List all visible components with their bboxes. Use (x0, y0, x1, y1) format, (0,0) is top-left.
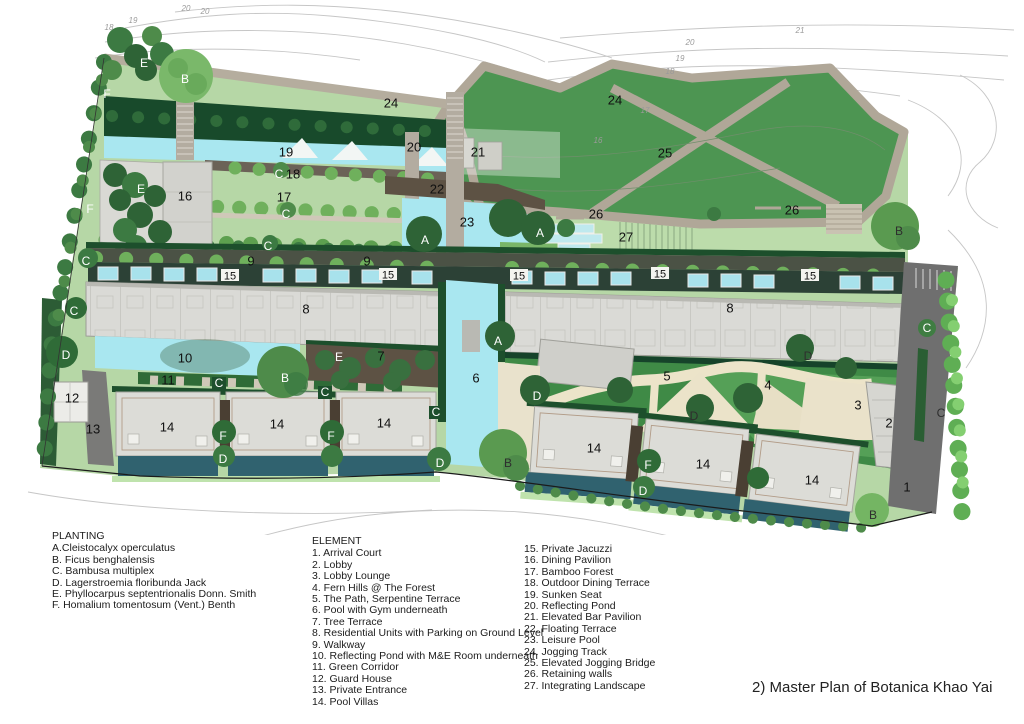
element-heading: ELEMENT (312, 536, 543, 547)
planting-letter-label: D (533, 389, 542, 403)
dining-pavilion-16 (163, 162, 212, 252)
element-number-label: 19 (279, 145, 293, 160)
contour-elevation-label: 19 (129, 16, 138, 25)
planting-letter-label: D (436, 456, 445, 470)
pool-villas-west (112, 392, 440, 482)
planting-letter-label: F (327, 429, 334, 443)
site-plan-drawing: 1234567889910111213141414141414151515151… (0, 0, 1024, 535)
planting-letter-label: C (82, 254, 91, 268)
element-legend-col1: ELEMENT 1. Arrival Court2. Lobby3. Lobby… (312, 536, 543, 708)
west-stair (176, 94, 194, 160)
contour-elevation-label: 19 (676, 54, 685, 63)
legend-item: 18. Outdoor Dining Terrace (524, 578, 655, 589)
element-number-label: 14 (270, 417, 284, 432)
planting-letter-label: E (137, 182, 145, 196)
element-number-label: 15 (804, 271, 816, 283)
planting-letter-label: B (281, 371, 289, 385)
element-items-col1: 1. Arrival Court2. Lobby3. Lobby Lounge4… (312, 548, 543, 708)
legend-item: 27. Integrating Landscape (524, 681, 655, 692)
element-number-label: 24 (384, 96, 398, 111)
element-number-label: 15 (382, 270, 394, 282)
element-number-label: 22 (430, 182, 444, 197)
east-hedge (946, 280, 962, 512)
planting-letter-label: E (335, 350, 343, 364)
planting-letter-label: C (282, 207, 291, 221)
legend-item: 8. Residential Units with Parking on Gro… (312, 628, 543, 639)
element-legend-col2: 15. Private Jacuzzi16. Dining Pavilion17… (524, 544, 655, 692)
planting-letter-label: B (504, 456, 512, 470)
element-number-label: 25 (658, 146, 672, 161)
element-number-label: 9 (363, 254, 370, 269)
element-number-label: 4 (764, 378, 771, 393)
element-number-label: 2 (885, 416, 892, 431)
element-number-label: 15 (513, 271, 525, 283)
villa-14 (112, 392, 224, 482)
planting-letter-label: C (321, 385, 330, 399)
contour-elevation-label: 20 (685, 38, 695, 47)
master-plan-sheet: 1234567889910111213141414141414151515151… (0, 0, 1024, 724)
element-number-label: 10 (178, 351, 192, 366)
planting-letter-label: C (275, 167, 284, 181)
planting-letter-label: C (432, 405, 441, 419)
element-number-label: 16 (178, 189, 192, 204)
element-number-label: 17 (277, 190, 291, 205)
pond-tree-shadow (160, 339, 250, 373)
element-number-label: 15 (654, 269, 666, 281)
planting-letter-label: D (690, 409, 699, 423)
planting-letter-label: E (140, 56, 148, 70)
planting-letter-label: A (421, 233, 429, 247)
planting-letter-label: B (181, 72, 189, 86)
element-items-col2: 15. Private Jacuzzi16. Dining Pavilion17… (524, 544, 655, 692)
legend-item: C. Bambusa multiplex (52, 566, 256, 577)
planting-items: A.Cleistocalyx operculatusB. Ficus bengh… (52, 543, 256, 611)
element-number-label: 12 (65, 391, 79, 406)
legend-item: 13. Private Entrance (312, 685, 543, 696)
villa-14 (222, 392, 334, 482)
element-number-label: 14 (696, 457, 710, 472)
element-number-label: 11 (161, 373, 175, 388)
planting-letter-label: D (62, 348, 71, 362)
element-number-label: 23 (460, 215, 474, 230)
element-number-label: 14 (377, 416, 391, 431)
contour-elevation-label: 20 (200, 7, 210, 16)
planting-letter-label: B (895, 224, 903, 238)
planting-letter-label: C (70, 304, 79, 318)
planting-letter-label: F (644, 458, 651, 472)
legend-item: 3. Lobby Lounge (312, 571, 543, 582)
legend-item: 23. Leisure Pool (524, 635, 655, 646)
planting-letter-label: F (103, 87, 110, 101)
planting-heading: PLANTING (52, 531, 256, 542)
planting-letter-label: B (869, 508, 877, 522)
planting-letter-label: D (219, 452, 228, 466)
pool-hedge-west (438, 282, 447, 422)
contour-elevation-label: 21 (795, 26, 805, 35)
element-number-label: 1 (903, 480, 910, 495)
contour-elevation-label: 18 (105, 23, 114, 32)
element-number-label: 15 (224, 271, 236, 283)
element-number-label: 20 (407, 140, 421, 155)
element-number-label: 8 (302, 302, 309, 317)
element-number-label: 26 (589, 207, 603, 222)
contour-elevation-label: 17 (641, 106, 650, 115)
element-number-label: 7 (377, 349, 384, 364)
element-number-label: 13 (86, 422, 100, 437)
planting-letter-label: D (639, 484, 648, 498)
contour-elevation-label: 18 (666, 67, 675, 76)
element-number-label: 5 (663, 369, 670, 384)
element-number-label: 14 (587, 441, 601, 456)
element-number-label: 3 (854, 398, 861, 413)
villa-14 (332, 392, 440, 482)
element-number-label: 18 (286, 167, 300, 182)
planting-letter-label: A (536, 226, 544, 240)
pool-bridge (462, 320, 480, 352)
planting-letter-label: C (215, 376, 224, 390)
element-number-label: 9 (247, 254, 254, 269)
legend-item: 14. Pool Villas (312, 697, 543, 708)
planting-letter-label: C (937, 406, 946, 420)
planting-letter-label: A (494, 334, 502, 348)
element-number-label: 24 (608, 93, 622, 108)
contour-elevation-label: 16 (594, 136, 603, 145)
element-number-label: 27 (619, 230, 633, 245)
element-number-label: 6 (472, 371, 479, 386)
element-number-label: 14 (805, 473, 819, 488)
element-number-label: 14 (160, 420, 174, 435)
planting-letter-label: D (804, 349, 813, 363)
planting-letter-label: F (219, 429, 226, 443)
planting-legend: PLANTING A.Cleistocalyx operculatusB. Fi… (52, 531, 256, 612)
element-number-label: 26 (785, 203, 799, 218)
drawing-title: 2) Master Plan of Botanica Khao Yai (752, 679, 992, 696)
planting-letter-label: F (86, 202, 93, 216)
planting-letter-label: C (923, 321, 932, 335)
legend-item: F. Homalium tomentosum (Vent.) Benth (52, 600, 256, 611)
element-number-label: 21 (471, 145, 485, 160)
planting-letter-label: C (264, 239, 273, 253)
contour-elevation-label: 20 (181, 4, 191, 13)
element-number-label: 8 (726, 301, 733, 316)
